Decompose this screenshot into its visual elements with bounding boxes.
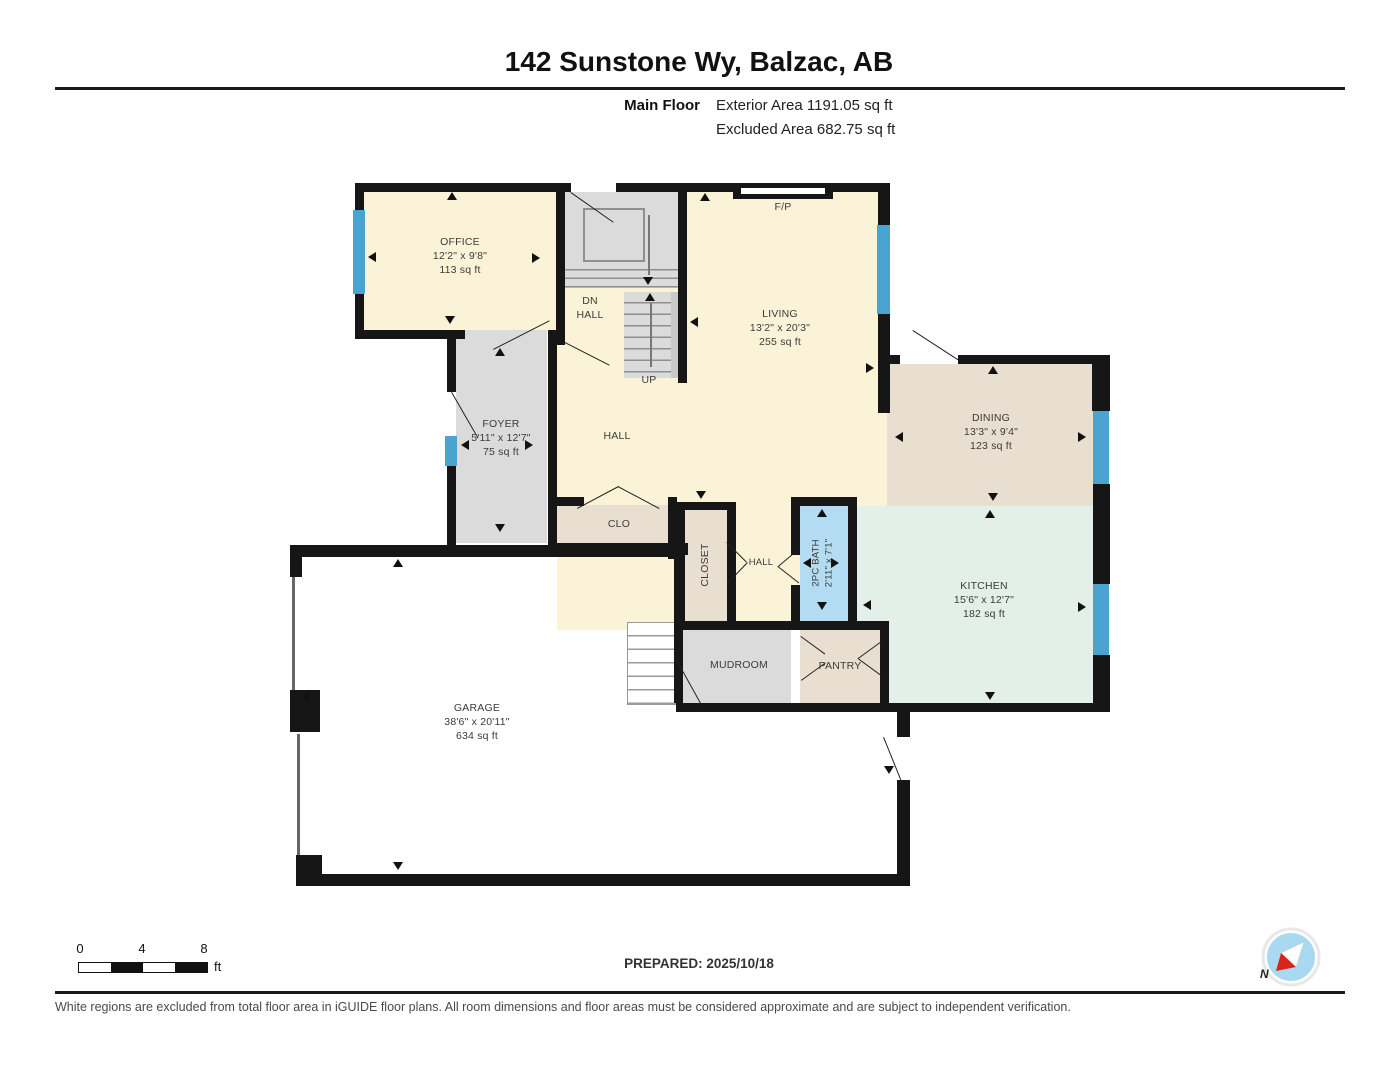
wall-segment <box>677 502 685 621</box>
floorplan-page: 142 Sunstone Wy, Balzac, AB Main Floor E… <box>0 0 1398 1080</box>
measure-arrow <box>393 862 403 870</box>
bath-dims: 2'11" x 7'1" <box>823 539 836 588</box>
stairs-down-arrow-shaft <box>648 215 650 275</box>
measure-arrow <box>532 253 540 263</box>
hall-label: HALL <box>603 430 630 444</box>
mudroom-label: MUDROOM <box>710 659 768 673</box>
garage-dims: 38'6" x 20'11" <box>444 716 509 730</box>
wall-segment <box>548 330 557 556</box>
window <box>1093 584 1109 655</box>
wall-segment <box>958 355 1105 364</box>
wall-segment <box>1092 355 1110 411</box>
door-leaf <box>912 330 958 360</box>
dn-text: DN <box>576 295 603 309</box>
wall-segment <box>1093 484 1110 584</box>
dining-name: DINING <box>964 412 1018 426</box>
wall-segment <box>878 183 890 225</box>
office-area: 113 sq ft <box>433 264 487 278</box>
wall-segment <box>447 330 456 392</box>
measure-arrow <box>863 600 871 610</box>
fireplace-inset <box>741 188 825 194</box>
wall-segment <box>355 183 571 192</box>
measure-arrow <box>817 509 827 517</box>
wall-segment <box>676 621 889 630</box>
clo-label: CLO <box>608 518 630 532</box>
measure-arrow <box>445 316 455 324</box>
measure-arrow <box>895 432 903 442</box>
measure-arrow <box>393 559 403 567</box>
measure-arrow <box>368 252 376 262</box>
compass-north-label: N <box>1260 967 1269 981</box>
window <box>445 436 457 466</box>
page-title: 142 Sunstone Wy, Balzac, AB <box>0 46 1398 78</box>
garage-name: GARAGE <box>444 702 509 716</box>
basement-stairs <box>627 622 678 705</box>
wall-segment <box>310 874 907 886</box>
stairs-up-arrowhead <box>645 293 655 301</box>
wall-segment <box>556 183 565 345</box>
wall-segment <box>897 780 910 886</box>
dining-label: DINING 13'3" x 9'4" 123 sq ft <box>964 412 1018 454</box>
bath-label: 2PC BATH 2'11" x 7'1" <box>810 539 835 588</box>
living-name: LIVING <box>750 308 810 322</box>
footer-rule <box>55 991 1345 994</box>
measure-arrow <box>1078 432 1086 442</box>
wall-segment <box>676 703 1110 712</box>
office-label: OFFICE 12'2" x 9'8" 113 sq ft <box>433 236 487 278</box>
foyer-area: 75 sq ft <box>471 446 530 460</box>
bath-name: 2PC BATH <box>810 539 823 588</box>
prepared-date: PREPARED: 2025/10/18 <box>0 956 1398 971</box>
foyer-name: FOYER <box>471 418 530 432</box>
stairs-down-treads <box>565 262 678 288</box>
measure-arrow <box>301 692 309 702</box>
garage-door-line <box>297 734 300 858</box>
wall-segment <box>848 497 857 630</box>
measure-arrow <box>985 692 995 700</box>
measure-arrow <box>1078 602 1086 612</box>
measure-arrow <box>461 440 469 450</box>
living-area: 255 sq ft <box>750 336 810 350</box>
stair-hatch-strip <box>671 292 678 378</box>
measure-arrow <box>495 348 505 356</box>
compass-icon <box>1261 927 1321 987</box>
stairs-down-arrowhead <box>643 277 653 285</box>
measure-arrow <box>447 192 457 200</box>
living-label: LIVING 13'2" x 20'3" 255 sq ft <box>750 308 810 350</box>
garage-door-line <box>292 577 295 693</box>
measure-arrow <box>985 510 995 518</box>
measure-arrow <box>988 493 998 501</box>
wall-segment <box>290 545 302 577</box>
fireplace-label: F/P <box>775 201 792 215</box>
header-rule <box>55 87 1345 90</box>
scale-tick-8: 8 <box>200 941 207 956</box>
foyer-label: FOYER 5'11" x 12'7" 75 sq ft <box>471 418 530 460</box>
dn-hall-label: DN HALL <box>576 295 603 323</box>
window <box>1093 411 1109 484</box>
scale-tick-4: 4 <box>138 941 145 956</box>
up-label: UP <box>642 374 657 388</box>
dn-hall-text: HALL <box>576 309 603 323</box>
measure-arrow <box>866 363 874 373</box>
garage-area: 634 sq ft <box>444 730 509 744</box>
disclaimer-text: White regions are excluded from total fl… <box>55 1000 1355 1014</box>
wall-segment <box>548 543 688 555</box>
kitchen-area: 182 sq ft <box>954 608 1014 622</box>
floor-label: Main Floor <box>0 97 700 114</box>
window <box>877 225 890 314</box>
wall-segment <box>678 183 687 383</box>
foyer-dims: 5'11" x 12'7" <box>471 432 530 446</box>
scale-tick-0: 0 <box>76 941 83 956</box>
closet-label: CLOSET <box>699 543 713 586</box>
exterior-area-label: Exterior Area 1191.05 sq ft <box>716 97 893 114</box>
dining-dims: 13'3" x 9'4" <box>964 426 1018 440</box>
wall-segment <box>897 712 910 737</box>
wall-segment <box>887 355 900 364</box>
wall-segment <box>880 621 889 712</box>
measure-arrow <box>690 317 698 327</box>
measure-arrow <box>495 524 505 532</box>
excluded-area-label: Excluded Area 682.75 sq ft <box>716 121 895 138</box>
office-name: OFFICE <box>433 236 487 250</box>
measure-arrow <box>884 766 894 774</box>
hall-small-label: HALL <box>749 557 774 570</box>
wall-segment <box>683 502 736 510</box>
measure-arrow <box>700 193 710 201</box>
kitchen-label: KITCHEN 15'6" x 12'7" 182 sq ft <box>954 580 1014 622</box>
measure-arrow <box>696 491 706 499</box>
kitchen-dims: 15'6" x 12'7" <box>954 594 1014 608</box>
kitchen-name: KITCHEN <box>954 580 1014 594</box>
stairs-up-arrow-shaft <box>650 303 652 367</box>
measure-arrow <box>988 366 998 374</box>
dining-area: 123 sq ft <box>964 440 1018 454</box>
garage-label: GARAGE 38'6" x 20'11" 634 sq ft <box>444 702 509 744</box>
wall-segment <box>791 585 800 621</box>
stair-railing <box>583 208 645 262</box>
wall-segment <box>727 502 736 621</box>
office-dims: 12'2" x 9'8" <box>433 250 487 264</box>
window <box>353 210 365 294</box>
pantry-label: PANTRY <box>819 660 862 674</box>
wall-segment <box>447 464 456 545</box>
measure-arrow <box>817 602 827 610</box>
living-dims: 13'2" x 20'3" <box>750 322 810 336</box>
